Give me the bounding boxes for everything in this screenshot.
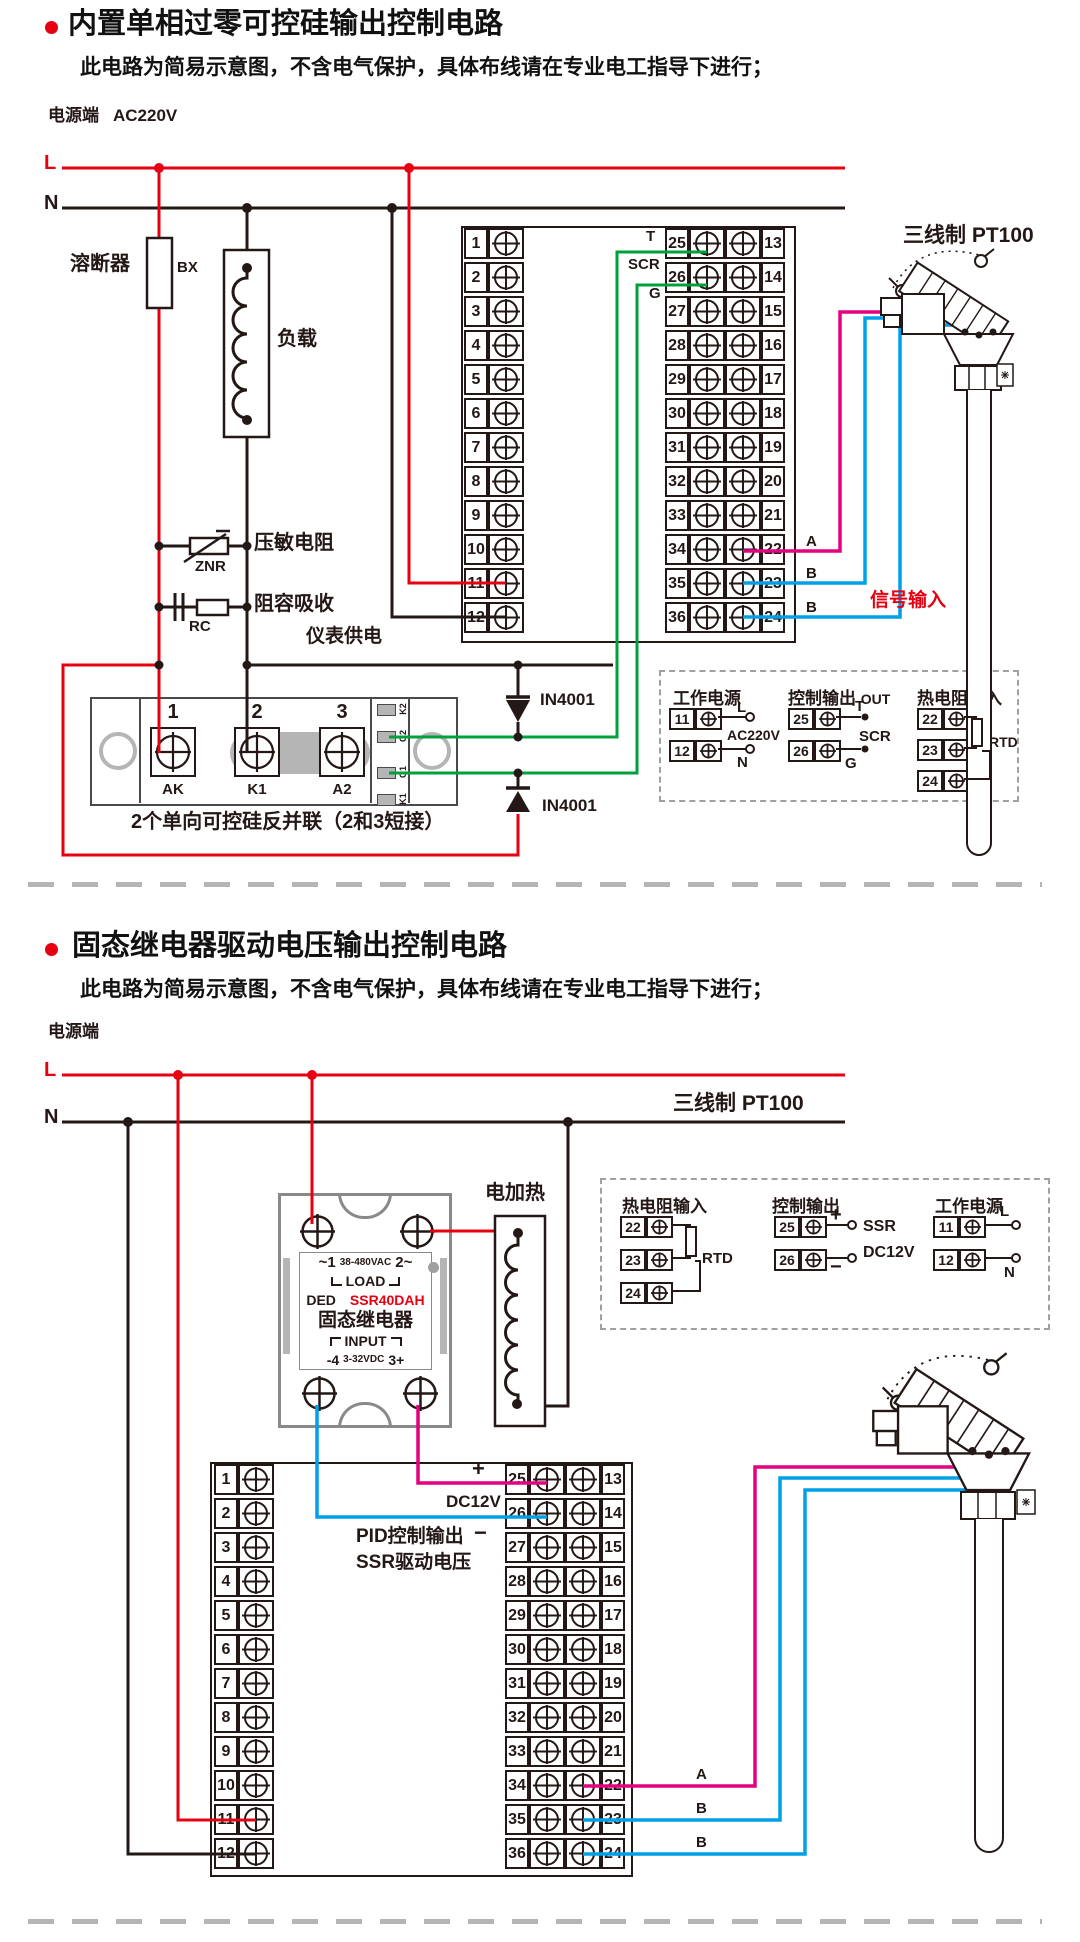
ssr-name: 固态继电器 — [318, 1311, 413, 1330]
section2-title: 固态继电器驱动电压输出控制电路 — [72, 930, 507, 963]
terminal-row: 3018 — [665, 398, 785, 429]
screw-terminal-icon — [488, 500, 524, 531]
scr-terminal-label: AK — [150, 781, 196, 798]
screw-terminal-icon — [488, 432, 524, 463]
g-terminal-label: G — [649, 285, 661, 302]
terminal-column-1-12: 123456789101112 — [464, 228, 524, 636]
terminal-row: 10 — [214, 1770, 274, 1801]
terminal-row: 2715 — [505, 1532, 625, 1563]
terminal-row: 2917 — [665, 364, 785, 395]
screw-terminal-icon — [565, 1634, 601, 1665]
screw-terminal-icon — [565, 1600, 601, 1631]
screw-terminal-icon — [725, 296, 761, 327]
terminal-row: 3119 — [505, 1668, 625, 1699]
sensor-wire-a-label: A — [806, 533, 817, 550]
screw-terminal-icon — [488, 330, 524, 361]
terminal-row: 2 — [464, 262, 524, 293]
terminal-row: 2 — [214, 1498, 274, 1529]
screw-terminal-icon — [943, 739, 970, 761]
dc12v-label: DC12V — [446, 1492, 501, 1512]
screw-terminal-icon — [238, 1702, 274, 1733]
screw-icon — [402, 1375, 439, 1412]
screw-terminal-icon — [488, 364, 524, 395]
mounting-hole-icon — [413, 732, 451, 770]
screw-terminal-icon — [725, 364, 761, 395]
section1-title: 内置单相过零可控硅输出控制电路 — [68, 8, 503, 41]
screw-terminal-icon — [565, 1566, 601, 1597]
screw-terminal-icon — [238, 1566, 274, 1597]
scr-terminal-number: 2 — [234, 701, 280, 724]
terminal-row: 2816 — [505, 1566, 625, 1597]
legend-ssr-label: SSR — [863, 1218, 896, 1236]
screw-terminal-icon — [646, 1249, 673, 1271]
terminal-row: 2917 — [505, 1600, 625, 1631]
terminal-row: 2614 — [505, 1498, 625, 1529]
ssr-model: SSR40DAH — [350, 1293, 425, 1307]
pt100-label: 三线制 PT100 — [903, 224, 1034, 248]
terminal-row: 3422 — [665, 534, 785, 565]
legend-plus: + — [830, 1204, 842, 1227]
screw-terminal-icon — [814, 740, 841, 762]
screw-terminal-icon — [238, 1498, 274, 1529]
terminal-row: 9 — [464, 500, 524, 531]
screw-terminal-icon — [529, 1838, 565, 1869]
terminal-row: 3 — [464, 296, 524, 327]
ssr-brand: DED — [306, 1293, 336, 1307]
terminal-row: 3220 — [505, 1702, 625, 1733]
screw-terminal-icon — [234, 727, 280, 777]
legend-rtd-label: RTD — [702, 1250, 733, 1267]
terminal-row: 3018 — [505, 1634, 625, 1665]
line-l-label: L — [44, 1059, 56, 1082]
screw-terminal-icon — [529, 1634, 565, 1665]
screw-terminal-icon — [238, 1668, 274, 1699]
screw-terminal-icon — [565, 1702, 601, 1733]
sensor-wire-b-label: B — [696, 1800, 707, 1817]
signal-input-label: 信号输入 — [870, 590, 946, 612]
screw-terminal-icon — [565, 1804, 601, 1835]
screw-terminal-icon — [695, 740, 722, 762]
gate-terminal-label: G1 — [398, 766, 408, 778]
plus-label: + — [472, 1456, 485, 1481]
legend-terminal: 23 — [917, 739, 970, 761]
screw-terminal-icon — [565, 1770, 601, 1801]
screw-terminal-icon — [800, 1216, 827, 1238]
legend-n-label: N — [737, 754, 748, 771]
varistor-code: ZNR — [195, 558, 226, 575]
terminal-row: 3624 — [505, 1838, 625, 1869]
legend-terminal: 11 — [933, 1216, 986, 1238]
led-indicator-icon — [428, 1262, 439, 1273]
legend-terminal: 24 — [917, 770, 970, 792]
screw-terminal-icon — [529, 1532, 565, 1563]
line-n-label: N — [44, 192, 58, 215]
terminal-row: 8 — [464, 466, 524, 497]
screw-terminal-icon — [488, 296, 524, 327]
terminal-row: 5 — [214, 1600, 274, 1631]
diode-label: IN4001 — [540, 690, 595, 710]
screw-terminal-icon — [646, 1282, 673, 1304]
varistor-label: 压敏电阻 — [254, 532, 334, 555]
legend-terminal: 25 — [788, 708, 841, 730]
terminal-row: 3 — [214, 1532, 274, 1563]
terminal-row: 7 — [214, 1668, 274, 1699]
screw-terminal-icon — [725, 500, 761, 531]
diode-label: IN4001 — [542, 796, 597, 816]
screw-terminal-icon — [565, 1838, 601, 1869]
terminal-row: 3624 — [665, 602, 785, 633]
legend-terminal: 23 — [620, 1249, 673, 1271]
screw-terminal-icon — [725, 228, 761, 259]
ssr-drive-label: SSR驱动电压 — [356, 1552, 471, 1574]
screw-terminal-icon — [529, 1668, 565, 1699]
terminal-row: 2513 — [505, 1464, 625, 1495]
screw-terminal-icon — [488, 466, 524, 497]
t-terminal-label: T — [646, 228, 655, 245]
rc-code: RC — [189, 618, 211, 635]
terminal-column-1-12: 123456789101112 — [214, 1464, 274, 1872]
terminal-row: 3321 — [665, 500, 785, 531]
screw-terminal-icon — [488, 262, 524, 293]
screw-terminal-icon — [238, 1634, 274, 1665]
ssr-load-label: LOAD — [346, 1274, 386, 1288]
screw-terminal-icon — [943, 708, 970, 730]
fuse-label: 溶断器 — [70, 253, 130, 276]
legend-terminal: 26 — [788, 740, 841, 762]
mounting-hole-icon — [99, 732, 137, 770]
legend-l-label: L — [1000, 1203, 1009, 1220]
screw-terminal-icon — [943, 770, 970, 792]
fuse-code: BX — [177, 259, 198, 276]
screw-terminal-icon — [959, 1249, 986, 1271]
screw-terminal-icon — [565, 1498, 601, 1529]
terminal-row: 2614 — [665, 262, 785, 293]
terminal-row: 12 — [214, 1838, 274, 1869]
screw-terminal-icon — [689, 364, 725, 395]
legend-n-label: N — [1004, 1264, 1015, 1281]
screw-terminal-icon — [238, 1838, 274, 1869]
pt100-label: 三线制 PT100 — [673, 1092, 804, 1116]
sensor-wire-b-label: B — [806, 565, 817, 582]
screw-terminal-icon — [800, 1249, 827, 1271]
legend-rtd-label: RTD — [989, 734, 1018, 750]
section-bullet-icon — [45, 943, 58, 956]
scr-module: 1 2 3 AK K1 A2 K2 G2 G1 K1 — [90, 697, 458, 806]
screw-terminal-icon — [565, 1464, 601, 1495]
screw-terminal-icon — [529, 1770, 565, 1801]
legend-l-label: L — [737, 699, 746, 716]
terminal-row: 4 — [214, 1566, 274, 1597]
terminal-row: 3220 — [665, 466, 785, 497]
screw-terminal-icon — [565, 1736, 601, 1767]
screw-terminal-icon — [689, 296, 725, 327]
terminal-row: 1 — [464, 228, 524, 259]
load-label: 负载 — [277, 328, 317, 351]
screw-terminal-icon — [529, 1464, 565, 1495]
screw-terminal-icon — [725, 432, 761, 463]
legend-terminal: 24 — [620, 1282, 673, 1304]
terminal-column-25-36-13-24: 2513261427152816291730183119322033213422… — [505, 1464, 625, 1872]
terminal-row: 3523 — [505, 1804, 625, 1835]
terminal-row: 3321 — [505, 1736, 625, 1767]
terminal-row: 1 — [214, 1464, 274, 1495]
screw-terminal-icon — [689, 602, 725, 633]
legend-dc12v-label: DC12V — [863, 1244, 915, 1262]
scr-output-label: SCR — [628, 256, 660, 273]
scr-terminal-label: K1 — [234, 781, 280, 798]
legend-g-label: G — [845, 755, 857, 772]
screw-terminal-icon — [238, 1464, 274, 1495]
screw-icon — [399, 1213, 436, 1250]
screw-terminal-icon — [529, 1566, 565, 1597]
screw-terminal-icon — [488, 534, 524, 565]
terminal-row: 11 — [464, 568, 524, 599]
gate-terminal-label: K2 — [398, 703, 408, 715]
legend-voltage: AC220V — [727, 727, 780, 743]
legend-box-2: 热电阻输入 控制输出 工作电源 22 23 24 RTD 25 26 + SSR… — [600, 1178, 1050, 1330]
legend-terminal: 22 — [917, 708, 970, 730]
line-l-label: L — [44, 152, 56, 175]
screw-terminal-icon — [529, 1600, 565, 1631]
line-n-label: N — [44, 1106, 58, 1129]
screw-terminal-icon — [646, 1216, 673, 1238]
ssr-module: ~138-480VAC2~ LOAD DEDSSR40DAH 固态继电器 INP… — [278, 1193, 452, 1428]
legend-title: 热电阻输入 — [917, 684, 1002, 709]
section-bullet-icon — [45, 21, 58, 34]
screw-terminal-icon — [695, 708, 722, 730]
screw-terminal-icon — [488, 568, 524, 599]
screw-terminal-icon — [238, 1736, 274, 1767]
power-side-label: 电源端AC220V — [48, 106, 177, 126]
minus-label: − — [474, 1520, 487, 1545]
screw-terminal-icon — [319, 727, 365, 777]
ssr-dc-terminal: 3+ — [388, 1353, 404, 1367]
screw-terminal-icon — [238, 1532, 274, 1563]
meter-supply-label: 仪表供电 — [306, 626, 382, 648]
legend-terminal: 11 — [669, 708, 722, 730]
ssr-ac-range: 38-480VAC — [340, 1258, 392, 1268]
terminal-row: 5 — [464, 364, 524, 395]
screw-terminal-icon — [725, 262, 761, 293]
legend-terminal: 12 — [669, 740, 722, 762]
sensor-wire-a-label: A — [696, 1766, 707, 1783]
screw-terminal-icon — [689, 228, 725, 259]
gate-terminal-label: K1 — [398, 793, 408, 805]
ssr-label-plate: ~138-480VAC2~ LOAD DEDSSR40DAH 固态继电器 INP… — [299, 1252, 432, 1370]
screw-terminal-icon — [529, 1498, 565, 1529]
screw-terminal-icon — [689, 398, 725, 429]
section1-subtitle: 此电路为简易示意图，不含电气保护，具体布线请在专业电工指导下进行； — [80, 56, 773, 80]
screw-terminal-icon — [814, 708, 841, 730]
ssr-ac-terminal: 2~ — [395, 1255, 412, 1270]
legend-scr-label: SCR — [859, 728, 891, 745]
legend-terminal: 22 — [620, 1216, 673, 1238]
screw-terminal-icon — [488, 602, 524, 633]
screw-terminal-icon — [238, 1770, 274, 1801]
screw-terminal-icon — [565, 1532, 601, 1563]
legend-t-label: T — [855, 698, 864, 715]
heater-label: 电加热 — [485, 1182, 545, 1205]
gate-terminal-label: G2 — [398, 730, 408, 742]
screw-terminal-icon — [488, 398, 524, 429]
screw-terminal-icon — [689, 262, 725, 293]
screw-terminal-icon — [959, 1216, 986, 1238]
legend-minus: − — [830, 1256, 842, 1279]
legend-title: 热电阻输入 — [622, 1192, 707, 1217]
rc-label: 阻容吸收 — [254, 593, 334, 616]
terminal-row: 4 — [464, 330, 524, 361]
section-separator — [28, 882, 1042, 887]
legend-title: 工作电源 — [935, 1192, 1003, 1217]
screw-terminal-icon — [689, 568, 725, 599]
screw-terminal-icon — [529, 1702, 565, 1733]
scr-terminal-number: 3 — [319, 701, 365, 724]
screw-terminal-icon — [689, 500, 725, 531]
screw-terminal-icon — [689, 330, 725, 361]
sensor-wire-b-label: B — [806, 599, 817, 616]
terminal-row: 7 — [464, 432, 524, 463]
terminal-row: 3422 — [505, 1770, 625, 1801]
pid-output-label: PID控制输出 — [356, 1526, 464, 1548]
screw-terminal-icon — [689, 432, 725, 463]
screw-terminal-icon — [689, 466, 725, 497]
terminal-row: 3523 — [665, 568, 785, 599]
scr-module-caption: 2个单向可控硅反并联（2和3短接） — [131, 811, 444, 834]
wiring-diagram-page: 123456789101112 251326142715281629173018… — [0, 0, 1080, 1942]
terminal-row: 11 — [214, 1804, 274, 1835]
power-side-label: 电源端 — [48, 1022, 99, 1042]
screw-terminal-icon — [725, 330, 761, 361]
legend-box-1: 工作电源 控制输出 OUT 热电阻输入 11 12 L AC220V N 25 … — [659, 670, 1019, 802]
screw-terminal-icon — [725, 398, 761, 429]
screw-icon — [299, 1213, 336, 1250]
screw-terminal-icon — [725, 602, 761, 633]
terminal-row: 6 — [464, 398, 524, 429]
scr-terminal-number: 1 — [150, 701, 196, 724]
ssr-dc-range: 3-32VDC — [343, 1355, 384, 1365]
screw-terminal-icon — [529, 1804, 565, 1835]
terminal-row: 2816 — [665, 330, 785, 361]
legend-title: 控制输出 OUT — [788, 684, 890, 709]
scr-terminal-label: A2 — [319, 781, 365, 798]
screw-terminal-icon — [725, 466, 761, 497]
sensor-wire-b-label: B — [696, 1834, 707, 1851]
terminal-row: 2715 — [665, 296, 785, 327]
screw-terminal-icon — [238, 1600, 274, 1631]
screw-terminal-icon — [529, 1736, 565, 1767]
legend-terminal: 26 — [774, 1249, 827, 1271]
screw-terminal-icon — [725, 568, 761, 599]
terminal-row: 8 — [214, 1702, 274, 1733]
ssr-dc-terminal: -4 — [327, 1353, 339, 1367]
legend-terminal: 12 — [933, 1249, 986, 1271]
screw-terminal-icon — [488, 228, 524, 259]
bottom-separator — [28, 1919, 1042, 1924]
terminal-row: 9 — [214, 1736, 274, 1767]
terminal-row: 10 — [464, 534, 524, 565]
legend-terminal: 25 — [774, 1216, 827, 1238]
screw-terminal-icon — [689, 534, 725, 565]
terminal-row: 3119 — [665, 432, 785, 463]
terminal-row: 6 — [214, 1634, 274, 1665]
terminal-row: 2513 — [665, 228, 785, 259]
section2-subtitle: 此电路为简易示意图，不含电气保护，具体布线请在专业电工指导下进行； — [80, 978, 773, 1002]
legend-title: 工作电源 — [673, 684, 741, 709]
terminal-row: 12 — [464, 602, 524, 633]
screw-terminal-icon — [238, 1804, 274, 1835]
screw-terminal-icon — [565, 1668, 601, 1699]
screw-terminal-icon — [725, 534, 761, 565]
screw-icon — [301, 1375, 338, 1412]
terminal-column-25-36-13-24: 2513261427152816291730183119322033213422… — [665, 228, 785, 636]
screw-terminal-icon — [150, 727, 196, 777]
ssr-input-label: INPUT — [345, 1334, 387, 1348]
ssr-ac-terminal: ~1 — [319, 1255, 336, 1270]
